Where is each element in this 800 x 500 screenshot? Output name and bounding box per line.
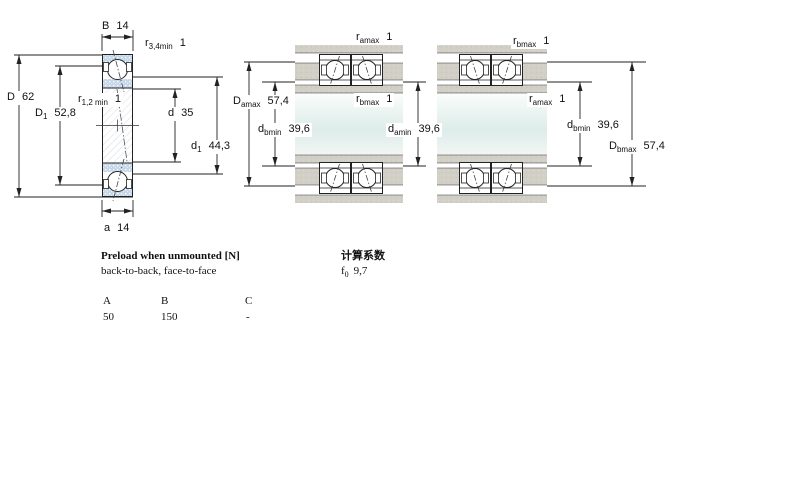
dim-label-d1: d144,3: [189, 140, 232, 154]
preload-col-header-b: B: [161, 295, 168, 308]
dim-label-Damax: Damax57,4: [231, 95, 291, 109]
bearing-datasheet-page: B14 r3,4min1 D62 r1,2 min1 D152,8 d35 d1…: [0, 0, 800, 500]
preload-value-c: -: [246, 311, 250, 324]
dim-label-B: B14: [100, 20, 131, 34]
dim-label-rbmax-middle: rbmax1: [354, 93, 394, 107]
calculation-factor-f0: f09,7: [341, 265, 367, 279]
right-mounted-pair-view: [437, 45, 547, 203]
dim-label-rbmax-right-top: rbmax1: [511, 35, 551, 49]
dim-label-dbmin-middle: dbmin39,6: [256, 123, 312, 137]
dim-label-a: a14: [102, 222, 131, 236]
dim-label-ramax-right: ramax1: [527, 93, 567, 107]
dim-label-r12min: r1,2 min1: [76, 93, 123, 107]
dim-label-r34min: r3,4min1: [143, 37, 188, 51]
preload-value-a: 50: [103, 311, 114, 324]
dim-label-D: D62: [5, 91, 36, 105]
dim-label-d: d35: [166, 107, 195, 121]
preload-title: Preload when unmounted [N]: [101, 250, 240, 263]
left-bearing-section-view: [96, 50, 139, 201]
calculation-factors-title: 计算系数: [341, 250, 385, 263]
dim-label-damin: damin39,6: [386, 123, 442, 137]
preload-value-b: 150: [161, 311, 178, 324]
preload-col-header-a: A: [103, 295, 111, 308]
preload-subtitle: back-to-back, face-to-face: [101, 265, 216, 278]
dim-label-D1: D152,8: [33, 107, 78, 121]
dim-label-dbmin-right: dbmin39,6: [565, 119, 621, 133]
preload-col-header-c: C: [245, 295, 252, 308]
dim-label-Dbmax: Dbmax57,4: [607, 140, 667, 154]
dim-label-ramax-middle-top: ramax1: [354, 31, 394, 45]
